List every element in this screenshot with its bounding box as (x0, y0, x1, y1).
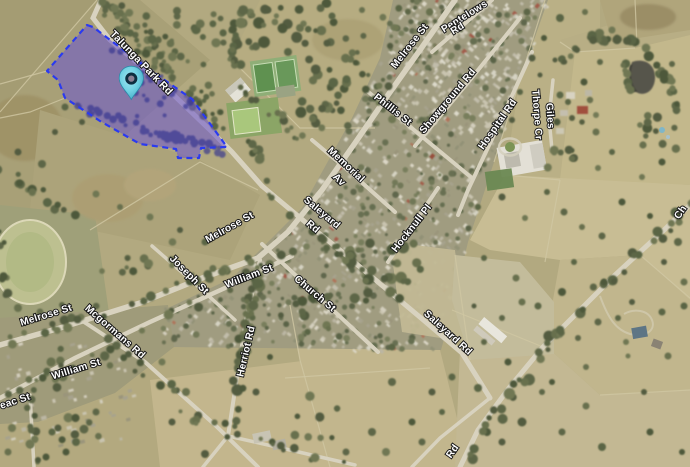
svg-text:Giles: Giles (543, 103, 556, 130)
